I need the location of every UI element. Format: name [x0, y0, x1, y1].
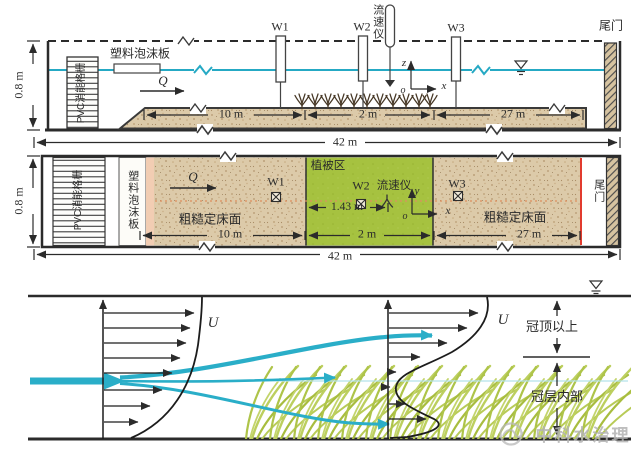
- side-dim-27m: 27 m: [501, 108, 525, 121]
- plan-dim-2m: 2 m: [358, 228, 376, 241]
- velocimeter-probe: [385, 5, 395, 87]
- water-level-symbol-profile: [590, 281, 602, 294]
- plan-roughbed-left-label: 粗糙定床面: [179, 213, 242, 226]
- plan-foam-label: 塑料泡沫板: [126, 170, 138, 230]
- above-canopy-label: 冠顶以上: [526, 320, 578, 334]
- profile-u-left-label: U: [208, 316, 219, 332]
- side-velocimeter-label: 流速仪: [371, 4, 383, 40]
- side-view: [27, 5, 621, 148]
- watermark-text: 中科水治理: [536, 427, 631, 445]
- wave-gauge-w1: [276, 36, 286, 108]
- side-w1-label: W1: [271, 21, 288, 34]
- gauge-marker-w1: [272, 193, 281, 202]
- side-depth-label: 0.8 m: [13, 71, 26, 98]
- wave-gauge-w3: [452, 37, 461, 108]
- side-axis-z-label: z: [402, 58, 406, 70]
- side-discharge-label: Q: [158, 74, 167, 88]
- plan-dim-143: 1.43 m: [331, 201, 363, 213]
- side-dim-42m: 42 m: [333, 136, 357, 149]
- foam-edge-strip: [146, 158, 154, 246]
- plan-vegzone-label: 植被区: [311, 160, 346, 172]
- side-axis-o-label: o: [401, 86, 406, 97]
- inside-canopy-label: 冠层内部: [531, 390, 583, 404]
- plan-w2-label: W2: [352, 180, 369, 193]
- side-axis-x-label: x: [442, 81, 447, 93]
- plan-dim-10m: 10 m: [218, 228, 242, 241]
- plan-velocimeter-label: 流速仪: [377, 180, 412, 192]
- plan-dim-27m: 27 m: [517, 228, 541, 241]
- profile-view: [28, 281, 640, 445]
- plan-axis-y-label: y: [415, 186, 420, 198]
- plan-axis-o-label: o: [403, 212, 408, 223]
- plan-w3-label: W3: [448, 178, 465, 191]
- profile-u-right-label: U: [498, 313, 509, 329]
- flume-experiment-figure: 0.8 m PVC消能格栅 塑料泡沫板 Q W1 W2 流速仪 W3 z o x…: [0, 0, 640, 462]
- gauge-marker-w3: [454, 192, 463, 201]
- plan-discharge-label: Q: [188, 170, 197, 184]
- plan-tailgate-label: 尾门: [592, 179, 604, 203]
- plan-depth-label: 0.8 m: [13, 187, 26, 214]
- side-dim-2m: 2 m: [359, 108, 377, 121]
- tail-gate-plan: [607, 158, 619, 246]
- plan-pvc-grid-label: PVC消能格栅: [74, 170, 85, 231]
- side-tailgate-label: 尾门: [599, 20, 623, 33]
- tail-gate-side: [605, 43, 617, 129]
- side-foam-label: 塑料泡沫板: [110, 48, 170, 61]
- foam-board: [114, 64, 160, 73]
- plan-w1-label: W1: [267, 176, 284, 189]
- side-dim-10m: 10 m: [219, 108, 243, 121]
- plan-axis-x-label: x: [446, 206, 451, 218]
- velocity-profile-left: [103, 297, 202, 439]
- plan-dim-42m: 42 m: [328, 250, 352, 263]
- water-level-symbol-side: [515, 61, 527, 75]
- side-pvc-grid-label: PVC消能格栅: [77, 63, 88, 124]
- side-axes: [411, 61, 436, 89]
- side-w3-label: W3: [447, 22, 464, 35]
- side-w2-label: W2: [353, 21, 370, 34]
- plan-roughbed-right-label: 粗糙定床面: [484, 211, 547, 224]
